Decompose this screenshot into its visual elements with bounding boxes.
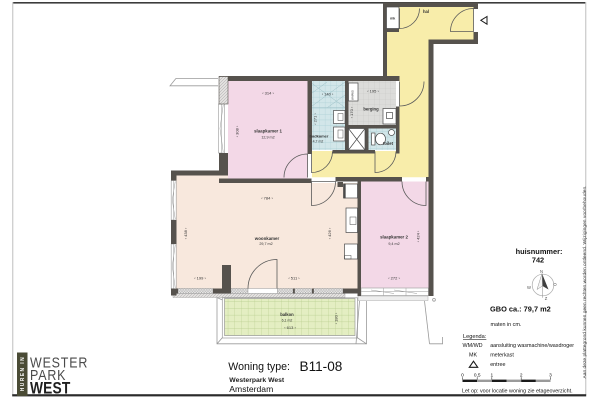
svg-text:‹ 613 ›: ‹ 613 › xyxy=(284,325,296,330)
svg-text:‹ 271 ›: ‹ 271 › xyxy=(313,113,318,125)
svg-text:‹ 199 ›: ‹ 199 › xyxy=(194,276,206,281)
svg-text:hal: hal xyxy=(423,9,429,14)
svg-text:‹ 314 ›: ‹ 314 › xyxy=(262,91,274,96)
svg-text:Legenda:: Legenda: xyxy=(463,334,487,340)
svg-text:MK: MK xyxy=(469,353,477,359)
svg-text:Amsterdam: Amsterdam xyxy=(229,384,273,394)
svg-text:balkon: balkon xyxy=(280,312,294,317)
svg-text:Let op: voor locatie woning: Let op: voor locatie woning zie etageove… xyxy=(462,389,573,395)
svg-text:‹ 180 ›: ‹ 180 › xyxy=(334,312,339,324)
svg-text:N: N xyxy=(540,269,543,274)
svg-text:‹ 511 ›: ‹ 511 › xyxy=(288,276,300,281)
svg-text:maten in cm.: maten in cm. xyxy=(491,322,522,328)
svg-text:12,9 m2: 12,9 m2 xyxy=(261,136,274,140)
svg-text:‹ 784 ›: ‹ 784 › xyxy=(261,196,273,201)
svg-text:‹ 438 ›: ‹ 438 › xyxy=(183,227,188,239)
svg-text:badkamer: badkamer xyxy=(310,134,329,139)
svg-text:29,7 m2: 29,7 m2 xyxy=(259,242,272,246)
svg-text:‹ 308 ›: ‹ 308 › xyxy=(235,125,240,137)
svg-text:mk: mk xyxy=(390,17,395,21)
svg-text:B11-08: B11-08 xyxy=(300,359,343,374)
svg-text:‹ 426 ›: ‹ 426 › xyxy=(327,227,332,239)
svg-text:W: W xyxy=(527,285,531,290)
svg-text:toilet: toilet xyxy=(383,141,394,146)
svg-text:‹ 195 ›: ‹ 195 › xyxy=(367,89,379,94)
svg-text:GBO ca.: 79,7 m2: GBO ca.: 79,7 m2 xyxy=(490,305,551,314)
svg-text:Z: Z xyxy=(545,296,548,301)
svg-text:Aan deze plattegrond kunnen ge: Aan deze plattegrond kunnen geen rechten… xyxy=(582,185,588,378)
svg-text:berging: berging xyxy=(363,107,379,112)
svg-text:WM/WD: WM/WD xyxy=(463,343,483,349)
svg-text:slaapkamer 1: slaapkamer 1 xyxy=(254,129,282,134)
svg-text:‹ 170 ›: ‹ 170 › xyxy=(349,106,354,118)
svg-text:‹ 272 ›: ‹ 272 › xyxy=(388,276,400,281)
svg-text:9,4 m2: 9,4 m2 xyxy=(388,242,399,246)
svg-text:slaapkamer 2: slaapkamer 2 xyxy=(380,235,408,240)
svg-text:entree: entree xyxy=(490,362,505,368)
svg-text:WEST: WEST xyxy=(30,379,71,398)
svg-text:‹ 140 ›: ‹ 140 › xyxy=(322,92,334,97)
svg-text:Westerpark West: Westerpark West xyxy=(229,377,285,384)
svg-text:WM/WD: WM/WD xyxy=(350,90,354,100)
svg-text:aansluiting wasmachine/wasdrog: aansluiting wasmachine/wasdroger xyxy=(490,343,574,349)
svg-text:4,7 m2: 4,7 m2 xyxy=(313,140,324,144)
svg-text:woonkamer: woonkamer xyxy=(254,236,280,241)
svg-text:742: 742 xyxy=(532,256,544,265)
svg-text:meterkast: meterkast xyxy=(490,353,514,359)
svg-text:Woning type:: Woning type: xyxy=(228,361,290,373)
svg-text:O: O xyxy=(553,282,557,287)
svg-text:‹ 424 ›: ‹ 424 › xyxy=(416,230,421,242)
svg-text:6,1 m2: 6,1 m2 xyxy=(282,319,293,323)
